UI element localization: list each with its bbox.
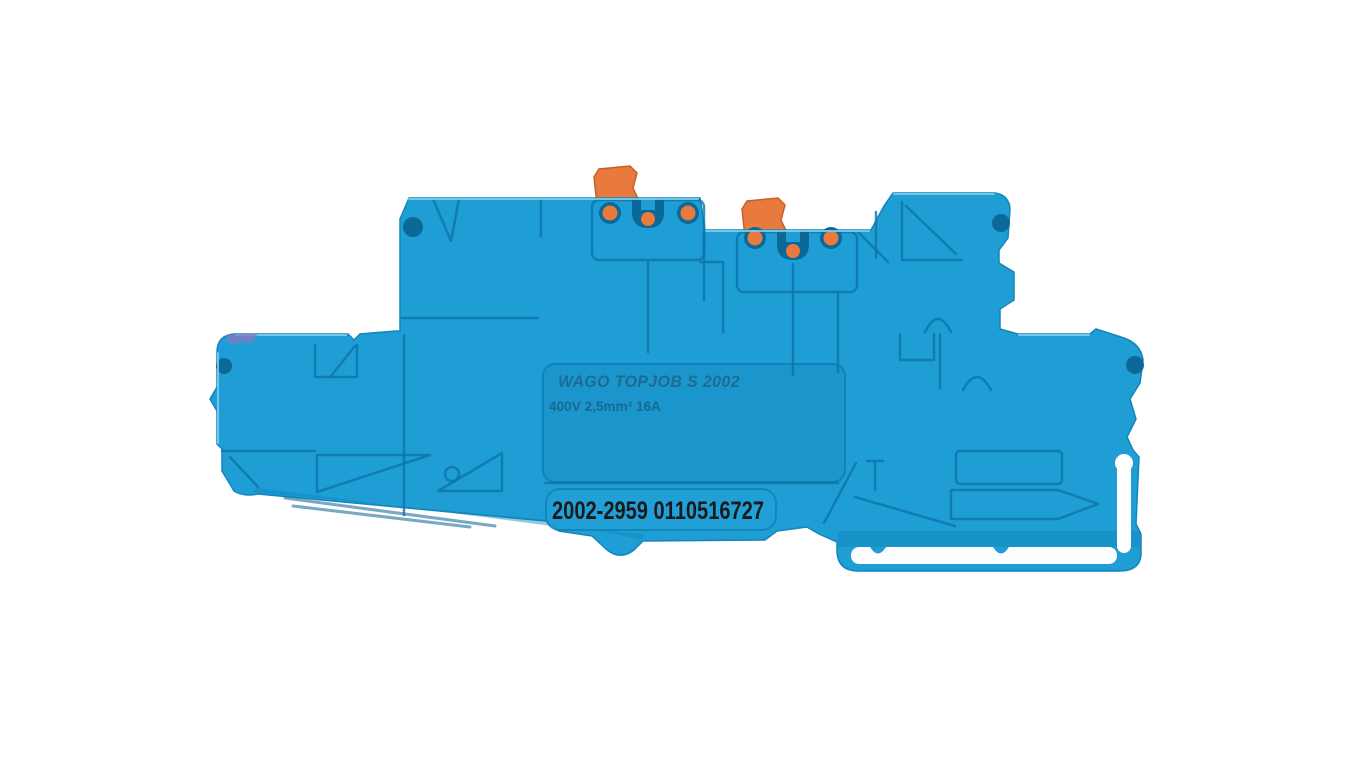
brand-marking-text: WAGO TOPJOB S 2002	[558, 372, 740, 391]
actuator-2	[786, 244, 800, 258]
rating-marking-text: 400V 2,5mm² 16A	[549, 398, 661, 414]
serial-label-text: 2002-2959 0110516727	[552, 497, 764, 525]
actuator-1	[641, 212, 655, 226]
test-port-contact-3	[748, 231, 763, 246]
screw-hole-upper-right	[992, 214, 1010, 232]
din-rail-slot	[851, 547, 1117, 564]
test-port-contact-2	[681, 206, 696, 221]
test-port-contact-1	[603, 206, 618, 221]
keyhole-slot	[1115, 454, 1133, 553]
terminal-block-photo: WAGO TOPJOB S 2002 400V 2,5mm² 16A 2002-…	[0, 0, 1360, 768]
product-photo: WAGO TOPJOB S 2002 400V 2,5mm² 16A 2002-…	[0, 0, 1360, 768]
screw-hole-upper-left	[403, 217, 423, 237]
test-port-contact-4	[824, 231, 839, 246]
screw-hole-lower-right	[1126, 356, 1144, 374]
